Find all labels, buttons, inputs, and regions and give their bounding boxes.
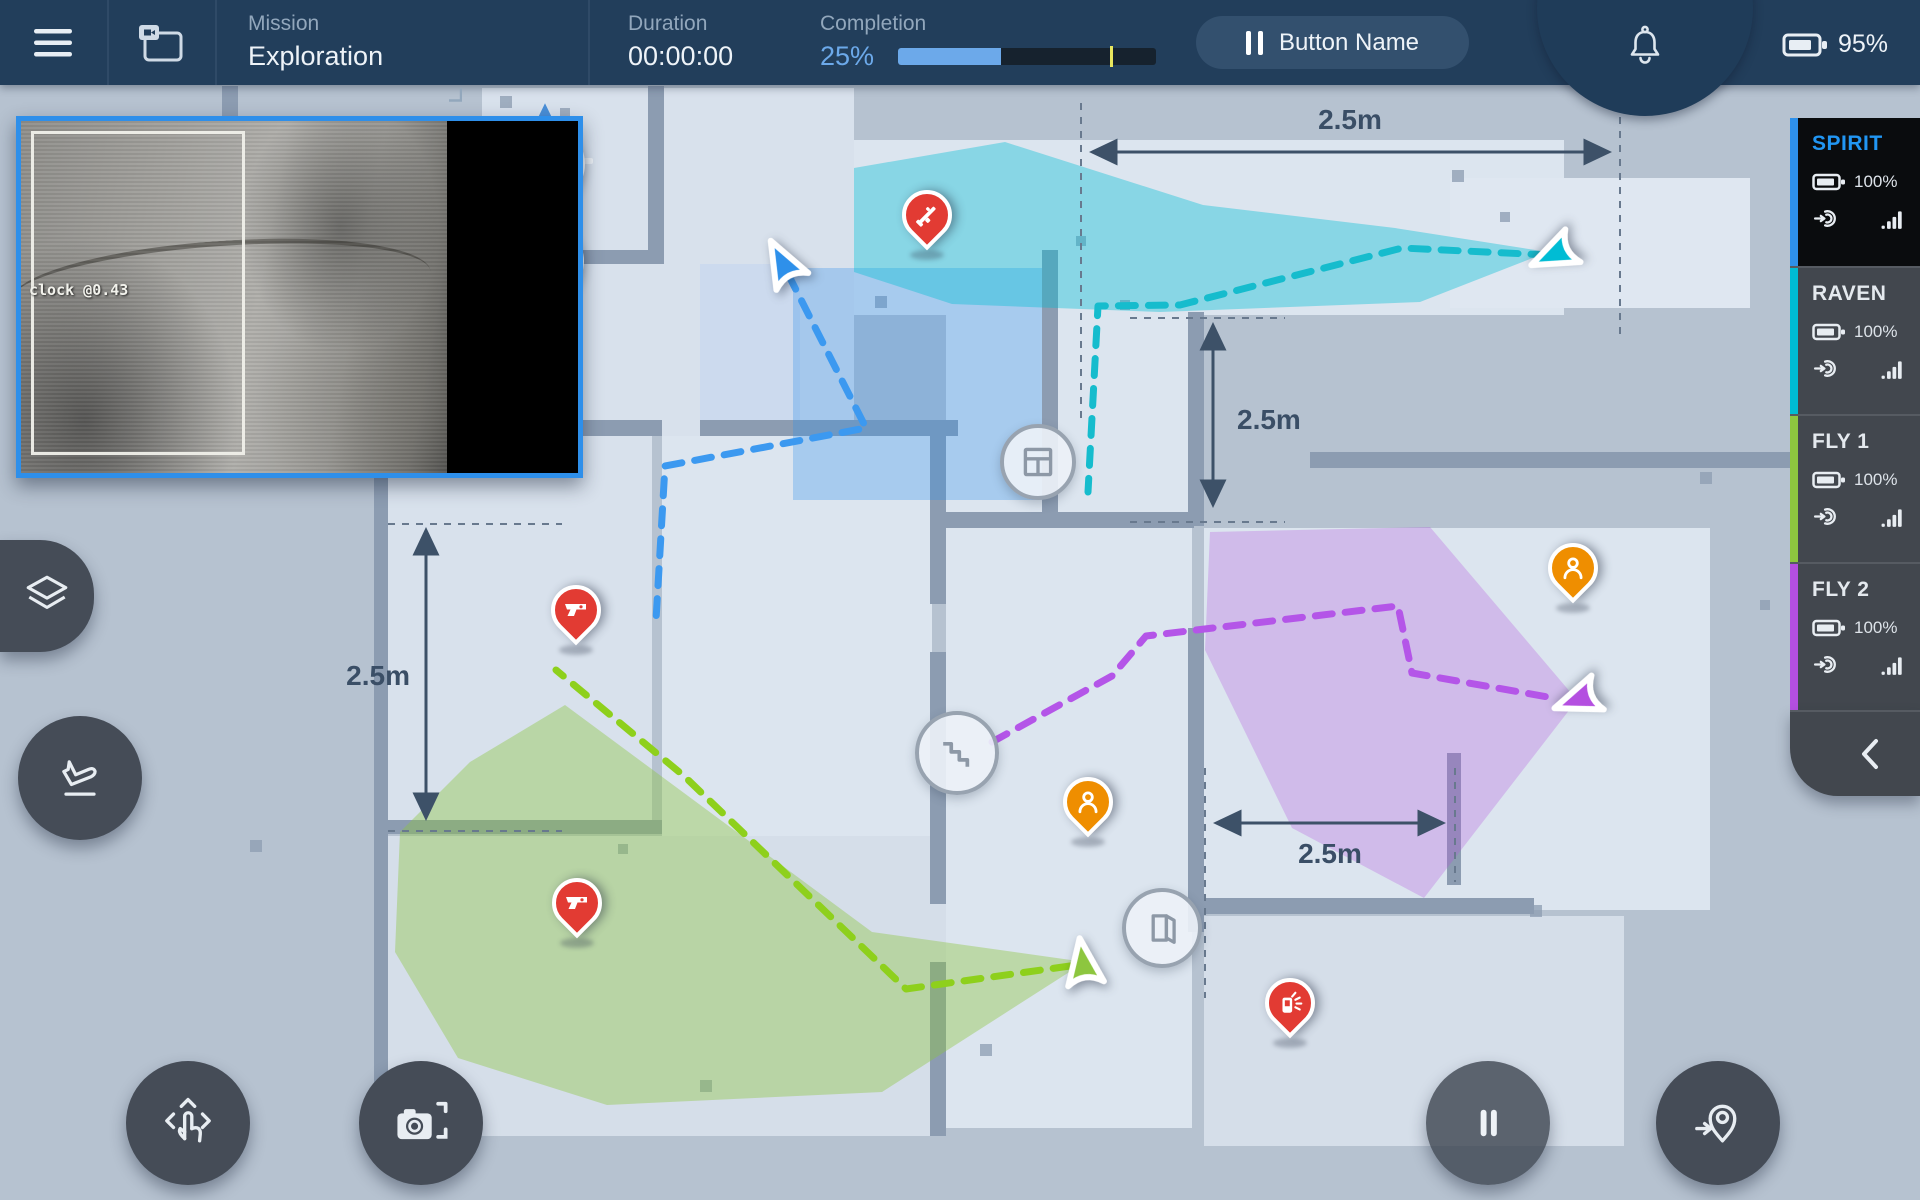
plane-landing-icon xyxy=(52,750,108,806)
picture-in-picture-icon xyxy=(138,24,184,62)
goto-pin-icon xyxy=(1689,1094,1747,1152)
robot-sidebar: SPIRIT 100% RAVE xyxy=(1790,118,1920,796)
chevron-left-icon xyxy=(1859,737,1881,771)
detection-label: clock @0.43 xyxy=(29,281,128,299)
video-pip-button[interactable] xyxy=(126,0,196,85)
robot-name: SPIRIT xyxy=(1812,132,1910,156)
telemetry-ping-icon xyxy=(1812,652,1839,677)
battery-percent: 100% xyxy=(1854,322,1897,342)
action-button-label: Button Name xyxy=(1279,29,1419,57)
completion-progress-fill xyxy=(898,48,1001,65)
mission-control-screen: 2.5m 2.5m 2.5m 2.5m N xyxy=(0,0,1920,1200)
layers-icon xyxy=(22,572,72,620)
battery-percent: 100% xyxy=(1854,172,1897,192)
robot-card-raven[interactable]: RAVEN 100% xyxy=(1790,266,1920,414)
completion-label: Completion xyxy=(820,13,926,34)
robot-card-fly2[interactable]: FLY 2 100% xyxy=(1790,562,1920,710)
pistol-icon xyxy=(555,589,597,631)
battery-percent: 100% xyxy=(1854,618,1897,638)
robot-name: FLY 1 xyxy=(1812,430,1910,454)
battery-icon xyxy=(1812,172,1846,192)
go-to-location-button[interactable] xyxy=(1656,1061,1780,1185)
dimension-label-bottom: 2.5m xyxy=(1285,838,1375,870)
system-battery: 95% xyxy=(1782,30,1888,59)
telemetry-ping-icon xyxy=(1812,504,1839,529)
battery-percent: 95% xyxy=(1838,30,1888,59)
battery-icon xyxy=(1782,32,1828,58)
rifle-icon xyxy=(906,194,948,236)
pause-icon xyxy=(1463,1098,1513,1148)
bell-icon xyxy=(1625,25,1665,69)
collapse-sidebar-button[interactable] xyxy=(1790,710,1920,796)
gesture-control-button[interactable] xyxy=(126,1061,250,1185)
battery-icon xyxy=(1812,470,1846,490)
pistol-icon xyxy=(556,882,598,924)
duration-block: Duration 00:00:00 xyxy=(628,13,733,98)
signal-strength-icon xyxy=(1879,357,1906,380)
pause-mission-button[interactable] xyxy=(1426,1061,1550,1185)
telemetry-ping-icon xyxy=(1812,206,1839,231)
telemetry-ping-icon xyxy=(1812,356,1839,381)
stairs-map-icon[interactable] xyxy=(915,711,999,795)
camera-feed-inset[interactable]: clock @0.43 xyxy=(16,116,583,478)
fly1-robot-marker[interactable] xyxy=(1047,926,1119,998)
robot-card-spirit[interactable]: SPIRIT 100% xyxy=(1790,118,1920,266)
screenshot-button[interactable] xyxy=(359,1061,483,1185)
hamburger-menu-icon xyxy=(34,29,72,57)
dimension-label-right: 2.5m xyxy=(1237,404,1301,436)
battery-icon xyxy=(1812,618,1846,638)
completion-target-marker xyxy=(1110,46,1113,67)
battery-icon xyxy=(1812,322,1846,342)
battery-percent: 100% xyxy=(1854,470,1897,490)
dimension-label-left: 2.5m xyxy=(310,660,410,692)
top-bar: Mission Exploration Duration 00:00:00 Co… xyxy=(0,0,1920,85)
completion-progress-bar xyxy=(898,48,1156,65)
person-icon xyxy=(1552,547,1594,589)
robot-card-fly1[interactable]: FLY 1 100% xyxy=(1790,414,1920,562)
door-map-icon[interactable] xyxy=(1122,888,1202,968)
dimension-label-top: 2.5m xyxy=(1305,104,1395,136)
pause-icon xyxy=(1246,31,1263,55)
duration-value: 00:00:00 xyxy=(628,43,733,70)
mission-expand-corner-icon xyxy=(448,52,462,137)
notifications-button[interactable] xyxy=(1622,24,1668,70)
robot-name: RAVEN xyxy=(1812,282,1910,306)
mission-selector[interactable]: Mission Exploration xyxy=(248,13,383,98)
camera-capture-icon xyxy=(391,1096,451,1150)
person-icon xyxy=(1067,781,1109,823)
window-map-icon[interactable] xyxy=(1000,424,1076,500)
camera-feed-image: clock @0.43 xyxy=(21,121,447,473)
touch-gesture-icon xyxy=(159,1094,217,1152)
detonator-icon xyxy=(1269,982,1311,1024)
action-button[interactable]: Button Name xyxy=(1196,16,1469,69)
mission-value: Exploration xyxy=(248,43,383,70)
mission-label: Mission xyxy=(248,13,383,34)
signal-strength-icon xyxy=(1879,207,1906,230)
signal-strength-icon xyxy=(1879,505,1906,528)
robot-name: FLY 2 xyxy=(1812,578,1910,602)
signal-strength-icon xyxy=(1879,653,1906,676)
main-menu-button[interactable] xyxy=(20,0,86,85)
duration-label: Duration xyxy=(628,13,733,34)
land-drone-button[interactable] xyxy=(18,716,142,840)
